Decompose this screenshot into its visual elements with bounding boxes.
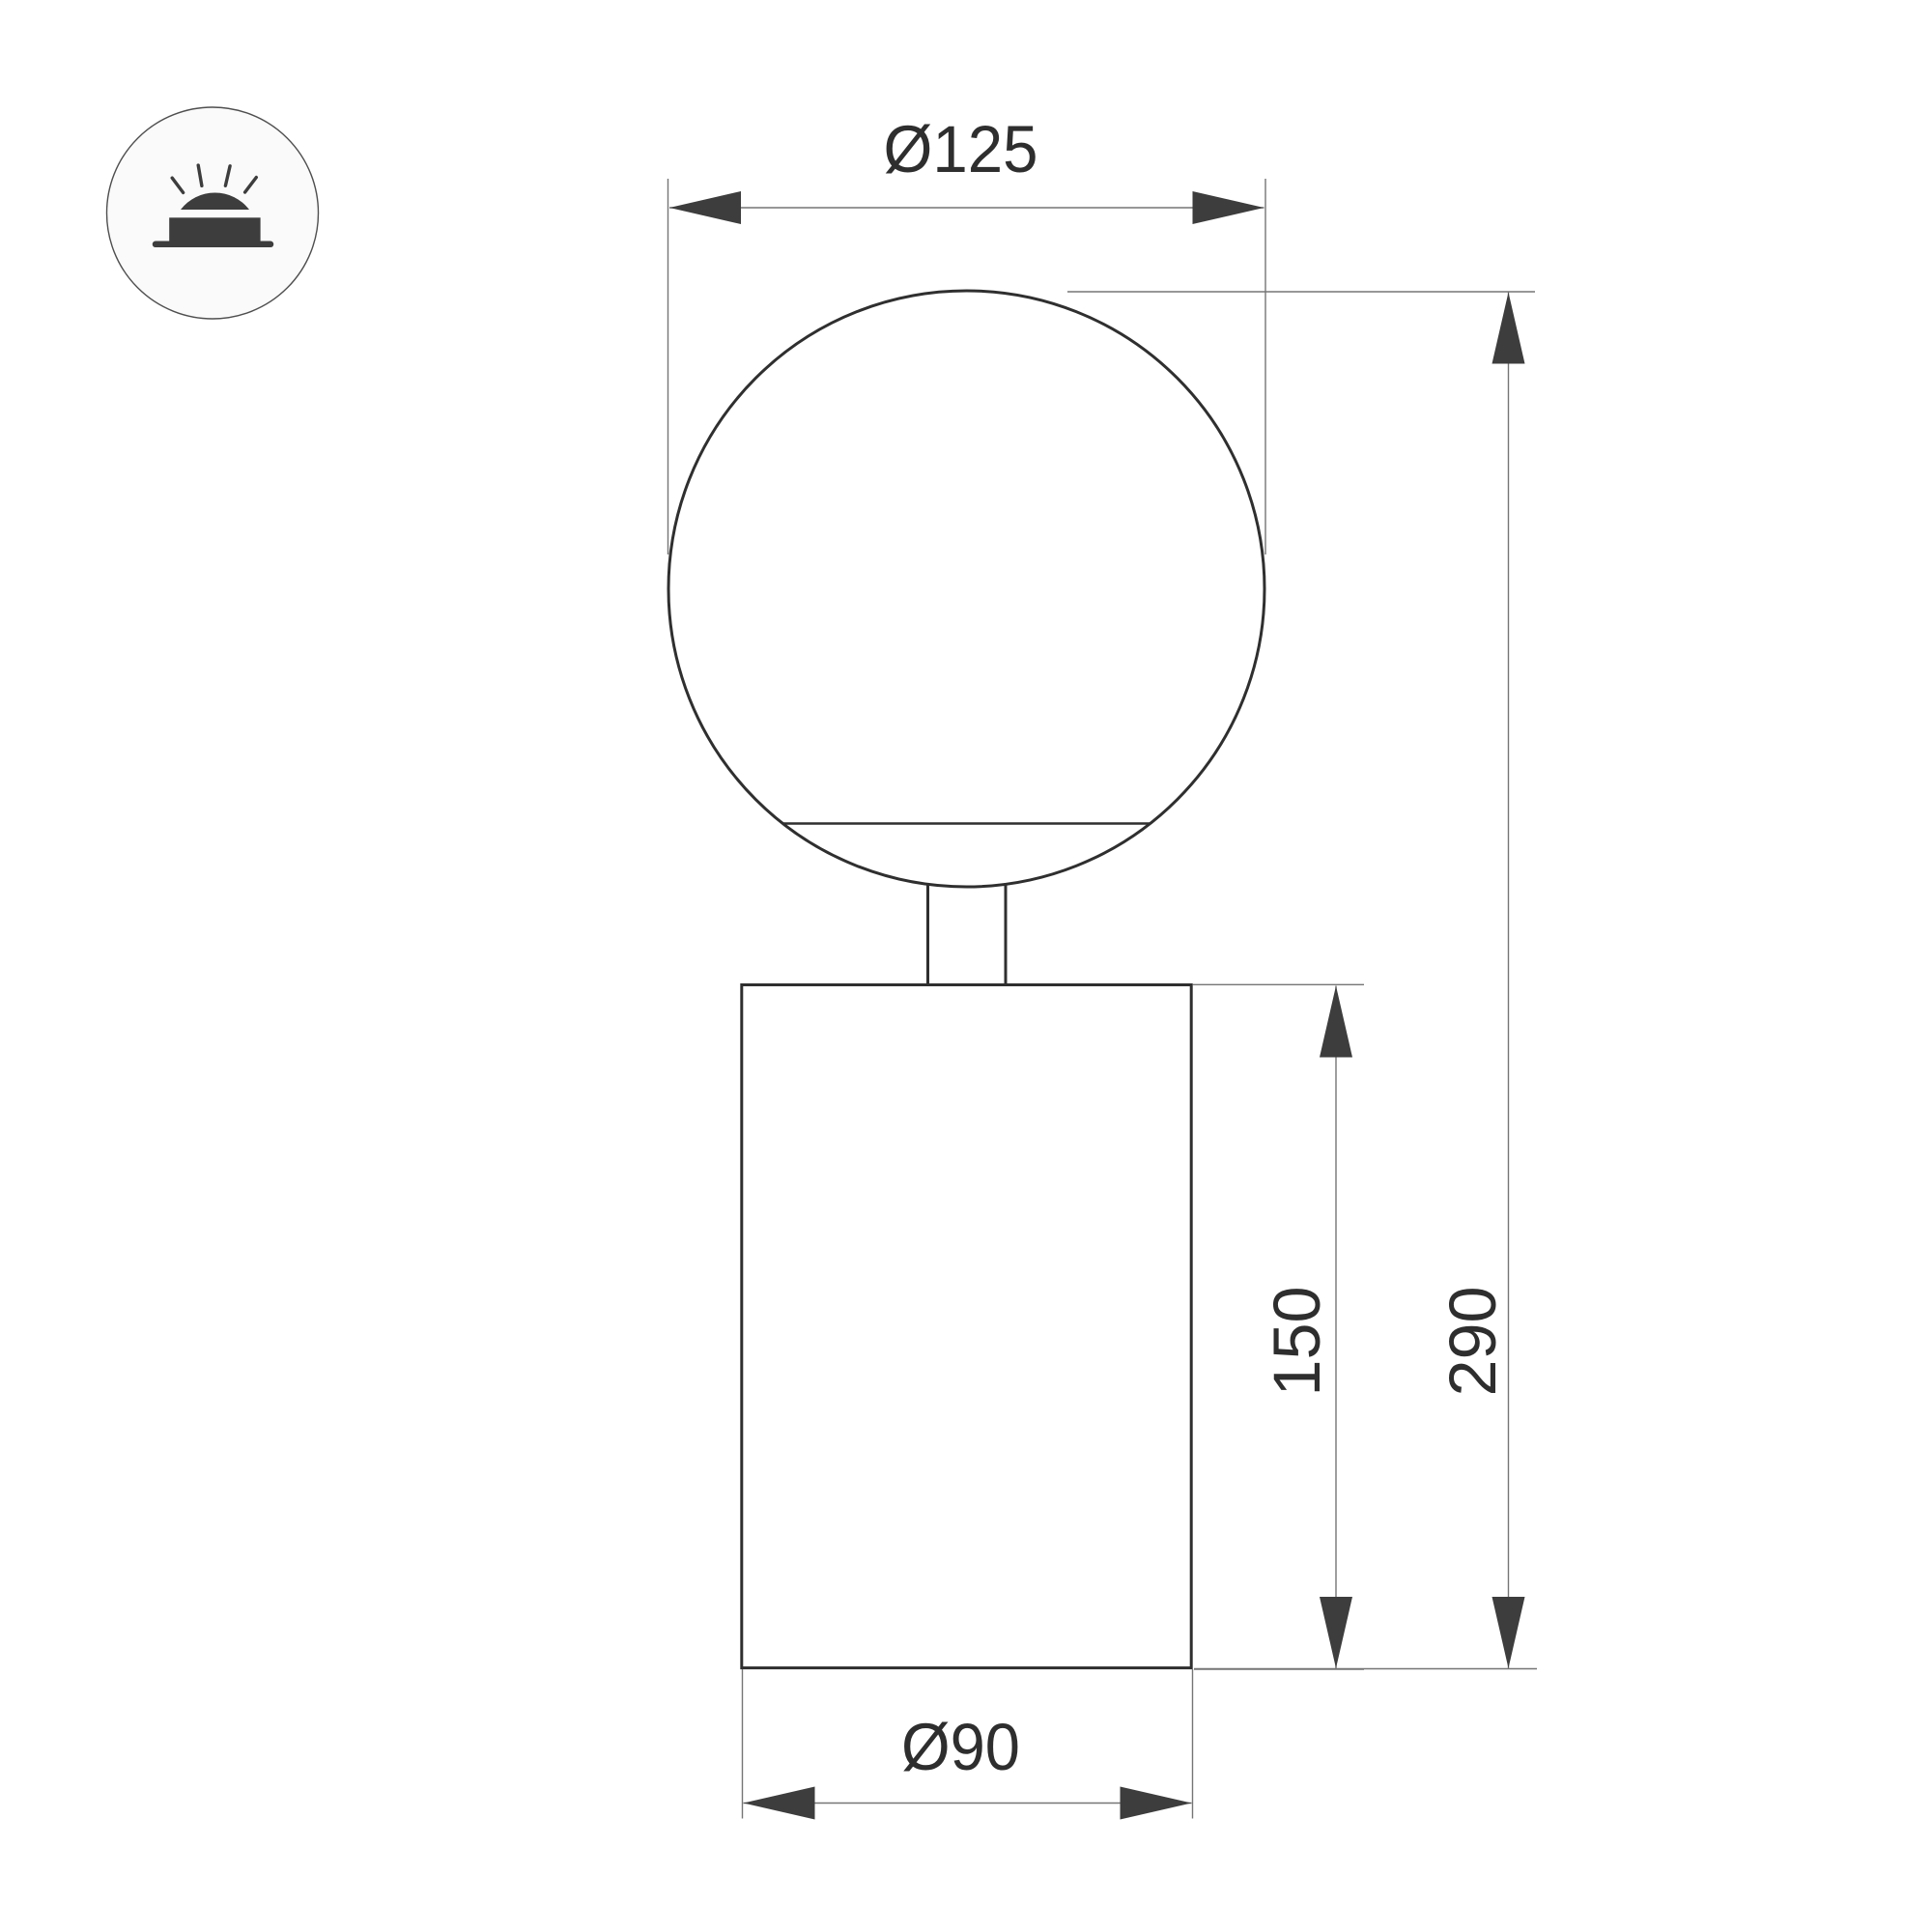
svg-text:290: 290 [1435, 1287, 1510, 1397]
svg-text:150: 150 [1260, 1287, 1334, 1397]
svg-text:Ø125: Ø125 [884, 112, 1038, 186]
svg-text:Ø90: Ø90 [901, 1710, 1020, 1784]
